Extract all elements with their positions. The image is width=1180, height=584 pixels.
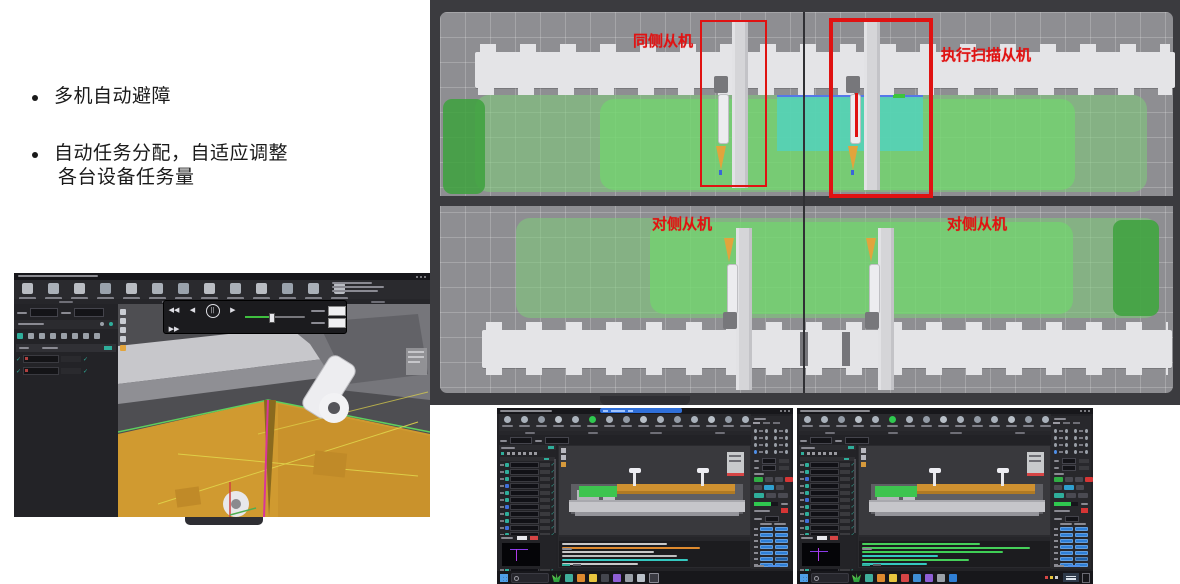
panel-menu-icon[interactable] — [100, 322, 104, 326]
radio-button[interactable] — [774, 450, 777, 454]
radio-row[interactable] — [1051, 434, 1091, 441]
player-button[interactable]: ▶ — [230, 306, 235, 314]
task-list-row[interactable] — [16, 354, 114, 364]
value-cell[interactable] — [775, 533, 788, 537]
radio-row[interactable] — [751, 448, 791, 455]
machine-side-viewport[interactable] — [858, 445, 1051, 536]
station-select[interactable] — [510, 437, 532, 444]
taskbar-search[interactable] — [811, 573, 849, 583]
radio-button[interactable] — [754, 450, 757, 454]
blue-button[interactable] — [1064, 485, 1074, 490]
task-type-select[interactable] — [74, 308, 104, 317]
radio-row[interactable] — [751, 434, 791, 441]
radio-button[interactable] — [754, 436, 757, 440]
start-button[interactable] — [800, 574, 808, 582]
toolbar-icon[interactable] — [652, 414, 669, 427]
station-select-row — [17, 308, 104, 317]
row-index — [800, 527, 804, 529]
apply-button[interactable] — [779, 459, 789, 463]
row-index — [800, 520, 804, 522]
toolbar-icon-label — [740, 425, 751, 427]
floating-blue-player[interactable] — [600, 408, 682, 413]
toolbar-icon[interactable] — [118, 280, 144, 299]
robot-effector-cone — [724, 238, 734, 262]
toolbar-icon[interactable] — [14, 280, 40, 299]
toolbar-icon[interactable] — [720, 414, 737, 427]
value-cell[interactable] — [1075, 533, 1088, 537]
radio-button[interactable] — [1074, 429, 1077, 433]
panel-footer-links[interactable] — [1054, 565, 1080, 567]
table-row[interactable] — [500, 518, 555, 524]
player-button[interactable]: ◀◀ — [169, 306, 180, 314]
value-cell[interactable] — [760, 545, 773, 549]
taskbar-app-icon[interactable] — [865, 574, 873, 582]
log-lines — [559, 543, 750, 565]
gray-button[interactable] — [1066, 493, 1076, 498]
toolbar-icon[interactable] — [867, 414, 884, 427]
tool-icon[interactable] — [83, 333, 89, 339]
blue-button[interactable] — [764, 485, 774, 490]
taskbar-app-icon[interactable] — [577, 574, 585, 582]
station-select[interactable] — [810, 437, 832, 444]
gray-button[interactable] — [765, 477, 773, 482]
tool-icon[interactable] — [39, 333, 45, 339]
windows-taskbar[interactable] — [797, 571, 1093, 584]
jog-input-row — [754, 458, 789, 464]
row-status-chip — [505, 526, 509, 530]
value-row-label — [754, 534, 758, 536]
camera-thumbnail[interactable] — [802, 543, 840, 566]
player-button[interactable]: ▶▶ — [169, 325, 180, 333]
row-status-chip — [505, 519, 509, 523]
table-row[interactable] — [800, 483, 855, 489]
presentation-slide: 多机自动避障 自动任务分配，自适应调整 各台设备任务量 — [0, 0, 1180, 584]
table-row[interactable] — [800, 469, 855, 475]
value-cell[interactable] — [1075, 557, 1088, 561]
log-tabs[interactable] — [862, 564, 881, 566]
value-cell[interactable] — [760, 539, 773, 543]
taskbar-app-icon[interactable] — [565, 574, 573, 582]
window-controls[interactable] — [416, 276, 426, 278]
radio-button[interactable] — [1074, 450, 1077, 454]
row-cell-name — [510, 511, 539, 517]
simulation-topview-screenshot: 同侧从机 执行扫描从机 对侧从机 对侧从机 — [430, 0, 1180, 405]
scrollbar[interactable] — [554, 459, 556, 533]
teal-button[interactable] — [754, 493, 764, 498]
start-button[interactable] — [754, 477, 763, 482]
table-row[interactable] — [500, 483, 555, 489]
table-row[interactable] — [800, 525, 855, 531]
mode-select[interactable] — [545, 437, 569, 444]
toolbar-icon[interactable] — [850, 414, 867, 427]
table-row[interactable] — [500, 525, 555, 531]
robot-arm — [629, 468, 641, 473]
value-cell[interactable] — [1075, 539, 1088, 543]
control-app-window-left — [497, 408, 793, 584]
toolbar-icon[interactable] — [833, 414, 850, 427]
teal-button[interactable] — [1054, 493, 1064, 498]
toolbar-icon-glyph — [957, 416, 964, 423]
floating-info-box — [406, 348, 427, 375]
gray-button[interactable] — [1076, 485, 1084, 490]
radio-button[interactable] — [774, 436, 777, 440]
log-line — [862, 551, 1003, 553]
jog-input[interactable] — [1062, 465, 1076, 471]
station-select[interactable] — [30, 308, 58, 317]
control-side-panel — [1051, 416, 1091, 569]
row-status-chip — [805, 491, 809, 495]
taskbar-app-icon[interactable] — [901, 574, 909, 582]
toolbar-icon-label — [938, 425, 949, 427]
task-list-row[interactable] — [16, 366, 114, 376]
table-row[interactable] — [500, 511, 555, 517]
toolbar-icon[interactable] — [222, 280, 248, 299]
tool-icon[interactable] — [120, 327, 126, 333]
machine-side-viewport[interactable] — [558, 445, 751, 536]
taskbar-app-icon[interactable] — [589, 574, 597, 582]
radio-button[interactable] — [1085, 436, 1088, 440]
tool-icon[interactable] — [28, 333, 34, 339]
gray-button[interactable] — [1065, 477, 1073, 482]
row-cell-value — [540, 463, 550, 467]
toolbar-icon[interactable] — [1037, 414, 1051, 427]
toolbar-icon-glyph — [126, 283, 137, 294]
row-cell-value — [840, 491, 850, 495]
jog-input[interactable] — [762, 465, 776, 471]
toolbar-icon[interactable] — [499, 414, 516, 427]
radio-button[interactable] — [1054, 450, 1057, 454]
toolbar-icon[interactable] — [1020, 414, 1037, 427]
toolbar-icon[interactable] — [196, 280, 222, 299]
table-row[interactable] — [500, 490, 555, 496]
tool-icon[interactable] — [120, 345, 126, 351]
radio-row[interactable] — [1051, 448, 1091, 455]
radio-button[interactable] — [754, 429, 757, 433]
radio-button[interactable] — [765, 436, 768, 440]
toolbar-icon[interactable] — [550, 414, 567, 427]
radio-label — [759, 451, 763, 453]
radio-button[interactable] — [1074, 436, 1077, 440]
toolbar-icon-label — [536, 425, 547, 427]
radio-button[interactable] — [1054, 429, 1057, 433]
value-cell[interactable] — [1060, 545, 1073, 549]
gray-button[interactable] — [1075, 477, 1083, 482]
toolbar-icon[interactable] — [669, 414, 686, 427]
value-cell[interactable] — [760, 527, 773, 531]
toolbar-icon[interactable] — [601, 414, 618, 427]
value-cell[interactable] — [1075, 545, 1088, 549]
toolbar-icon[interactable] — [935, 414, 952, 427]
taskbar-app-icon[interactable] — [949, 574, 957, 582]
tool-icon[interactable] — [120, 309, 126, 315]
taskbar-app-icon[interactable] — [601, 574, 609, 582]
toolbar-icon[interactable] — [969, 414, 986, 427]
toolbar-icon[interactable] — [799, 414, 816, 427]
player-button[interactable]: ◀ — [190, 306, 195, 314]
playback-speed-input[interactable] — [328, 318, 346, 328]
radio-button[interactable] — [785, 443, 788, 447]
toolbar-icon-glyph — [804, 416, 811, 423]
row-cell-name — [510, 476, 539, 482]
radio-button[interactable] — [1065, 429, 1068, 433]
toolbar-icon[interactable] — [918, 414, 935, 427]
toolbar-icon[interactable] — [635, 414, 652, 427]
active-app-icon[interactable] — [649, 573, 659, 583]
toolbar-icon[interactable] — [248, 280, 274, 299]
list-column-header — [500, 457, 555, 461]
taskbar-app-icon[interactable] — [937, 574, 945, 582]
toolbar-icon[interactable] — [703, 414, 720, 427]
taskbar-search[interactable] — [511, 573, 549, 583]
offset-field-row — [1054, 516, 1079, 522]
toolbar-icon[interactable] — [66, 280, 92, 299]
radio-button[interactable] — [1074, 443, 1077, 447]
taskbar-app-icon[interactable] — [925, 574, 933, 582]
toolbar-icon-label — [519, 425, 530, 427]
log-tabs[interactable] — [562, 564, 581, 566]
table-row[interactable] — [800, 518, 855, 524]
gray-button[interactable] — [766, 493, 776, 498]
table-row[interactable] — [500, 476, 555, 482]
row-cell-name — [810, 497, 839, 503]
row-status-chip — [505, 470, 509, 474]
value-cell[interactable] — [760, 557, 773, 561]
offset-input[interactable] — [1065, 516, 1079, 522]
toolbar-icon-glyph — [74, 283, 85, 294]
taskbar-app-icon[interactable] — [889, 574, 897, 582]
panel-tabs[interactable] — [1053, 422, 1080, 424]
gray-button[interactable] — [1054, 485, 1062, 490]
radio-row[interactable] — [1051, 427, 1091, 434]
log-panel[interactable] — [858, 536, 1051, 568]
taskbar-app-icon[interactable] — [613, 574, 621, 582]
value-cell[interactable] — [775, 545, 788, 549]
tool-icon[interactable] — [50, 333, 56, 339]
alarm-chip — [530, 536, 538, 540]
toolbar-icon[interactable] — [686, 414, 703, 427]
value-cell[interactable] — [1060, 557, 1073, 561]
stop-button[interactable] — [785, 477, 793, 482]
toolbar-icon[interactable] — [816, 414, 833, 427]
panel-tabs[interactable] — [753, 422, 780, 424]
value-cell[interactable] — [775, 539, 788, 543]
tray-clock[interactable] — [1063, 573, 1079, 582]
toolbar-icon-label — [689, 425, 700, 427]
radio-row[interactable] — [751, 441, 791, 448]
value-cell[interactable] — [760, 551, 773, 555]
toolbar-icon-glyph — [204, 283, 215, 294]
window-controls[interactable] — [1080, 410, 1090, 412]
table-row[interactable] — [800, 476, 855, 482]
taskbar-app-icon[interactable] — [877, 574, 885, 582]
row-index — [800, 478, 804, 480]
log-panel[interactable] — [558, 536, 751, 568]
taskbar-app-icon[interactable] — [637, 574, 645, 582]
toolbar-icon[interactable] — [1003, 414, 1020, 427]
table-row[interactable] — [800, 511, 855, 517]
gray-button[interactable] — [754, 485, 762, 490]
radio-button[interactable] — [1085, 429, 1088, 433]
table-row[interactable] — [500, 462, 555, 468]
value-cell[interactable] — [1075, 527, 1088, 531]
scrollbar[interactable] — [854, 459, 856, 533]
toolbar-icon-glyph — [821, 416, 828, 423]
value-row — [1054, 538, 1088, 543]
toolbar-icon-glyph — [308, 283, 319, 294]
toolbar-icon[interactable] — [737, 414, 751, 427]
preview-field[interactable] — [817, 536, 827, 540]
task-list-panel — [14, 304, 118, 517]
start-button[interactable] — [500, 574, 508, 582]
header-filter-chip[interactable] — [104, 346, 112, 350]
panel-chip[interactable] — [848, 446, 854, 449]
toolbar-icon[interactable] — [533, 414, 550, 427]
value-cell[interactable] — [775, 551, 788, 555]
toolbar-icon-glyph — [923, 416, 930, 423]
toolbar-icon-label — [802, 425, 813, 427]
stop-button[interactable] — [1085, 477, 1093, 482]
preview-field[interactable] — [517, 536, 527, 540]
panel-settings-icon[interactable] — [109, 322, 113, 326]
radio-button[interactable] — [1085, 450, 1088, 454]
panel-footer-links[interactable] — [754, 565, 780, 567]
row-check-icon — [16, 368, 21, 375]
taskbar-app-icon[interactable] — [913, 574, 921, 582]
radio-row[interactable] — [751, 427, 791, 434]
radio-row[interactable] — [1051, 441, 1091, 448]
radio-label — [759, 430, 763, 432]
toolbar-icon[interactable] — [92, 280, 118, 299]
list-column-header — [800, 457, 855, 461]
camera-thumbnail[interactable] — [502, 543, 540, 566]
value-row — [754, 538, 788, 543]
value-cell[interactable] — [1075, 551, 1088, 555]
apply-button[interactable] — [1079, 459, 1089, 463]
toolbar-icon[interactable] — [567, 414, 584, 427]
gray-button[interactable] — [1078, 493, 1088, 498]
apply-button[interactable] — [1079, 466, 1089, 470]
radio-button[interactable] — [754, 443, 757, 447]
tool-icon[interactable] — [120, 336, 126, 342]
value-cell[interactable] — [1060, 527, 1073, 531]
jog-input[interactable] — [1062, 458, 1076, 464]
radio-button[interactable] — [1065, 436, 1068, 440]
action-buttons-row — [1054, 477, 1093, 482]
value-cell[interactable] — [760, 533, 773, 537]
window-controls[interactable] — [780, 410, 790, 412]
toolbar-icon[interactable] — [901, 414, 918, 427]
show-desktop-button[interactable] — [1082, 573, 1090, 583]
tool-icon[interactable] — [61, 333, 67, 339]
bullet-marker — [32, 95, 38, 101]
sim-speed-input[interactable] — [328, 306, 346, 316]
tool-icon[interactable] — [120, 318, 126, 324]
toolbar-icon[interactable] — [952, 414, 969, 427]
mode-select[interactable] — [845, 437, 869, 444]
radio-button[interactable] — [774, 429, 777, 433]
toolbar-icon[interactable] — [274, 280, 300, 299]
offset-input[interactable] — [765, 516, 779, 522]
base-rail — [569, 500, 745, 512]
gray-button[interactable] — [776, 485, 784, 490]
value-cell[interactable] — [1060, 539, 1073, 543]
toolbar-icon[interactable] — [170, 280, 196, 299]
value-cell[interactable] — [1060, 533, 1073, 537]
toolbar-icon[interactable] — [618, 414, 635, 427]
panel-chip[interactable] — [548, 446, 554, 449]
table-row[interactable] — [800, 504, 855, 510]
radio-button[interactable] — [765, 450, 768, 454]
toolbar-icon[interactable] — [884, 414, 901, 427]
alarm-indicator — [1081, 508, 1088, 513]
radio-button[interactable] — [765, 429, 768, 433]
table-row[interactable] — [500, 469, 555, 475]
taskbar-app-icon[interactable] — [625, 574, 633, 582]
radio-button[interactable] — [785, 450, 788, 454]
radio-button[interactable] — [1065, 443, 1068, 447]
timeline-slider[interactable] — [245, 316, 305, 318]
table-row[interactable] — [800, 462, 855, 468]
player-button[interactable]: || — [206, 304, 220, 318]
viewer-3d-viewport[interactable] — [118, 304, 430, 517]
row-cell-name — [810, 476, 839, 482]
value-cell[interactable] — [1060, 551, 1073, 555]
value-cell[interactable] — [775, 527, 788, 531]
start-button[interactable] — [1054, 477, 1063, 482]
value-cell[interactable] — [775, 557, 788, 561]
radio-button[interactable] — [1065, 450, 1068, 454]
viewer-option-checkboxes[interactable] — [332, 282, 392, 297]
gray-button[interactable] — [775, 477, 783, 482]
tool-icon[interactable] — [94, 333, 100, 339]
job-list-panel — [499, 445, 556, 533]
system-tray-icons[interactable] — [1045, 576, 1058, 579]
row-index — [500, 485, 504, 487]
apply-button[interactable] — [779, 466, 789, 470]
viewer-titlebar[interactable] — [14, 273, 430, 280]
tool-icon[interactable] — [72, 333, 78, 339]
toolbar-icon[interactable] — [300, 280, 326, 299]
toolbar-icon[interactable] — [986, 414, 1003, 427]
toolbar-icon-glyph — [152, 283, 163, 294]
row-index — [800, 513, 804, 515]
radio-button[interactable] — [774, 443, 777, 447]
radio-button[interactable] — [765, 443, 768, 447]
toolbar-icon[interactable] — [40, 280, 66, 299]
radio-button[interactable] — [1054, 443, 1057, 447]
table-row[interactable] — [800, 490, 855, 496]
row-status-chip — [805, 512, 809, 516]
radio-button[interactable] — [1085, 443, 1088, 447]
toolbar-icon-glyph — [640, 416, 647, 423]
task-color-chip — [25, 357, 28, 360]
toolbar-icon-glyph — [230, 283, 241, 294]
gray-button[interactable] — [778, 493, 788, 498]
radio-button[interactable] — [1054, 436, 1057, 440]
toolbar-icon[interactable] — [516, 414, 533, 427]
table-row[interactable] — [500, 497, 555, 503]
toolbar-icon[interactable] — [144, 280, 170, 299]
table-row[interactable] — [800, 497, 855, 503]
radio-button[interactable] — [785, 436, 788, 440]
jog-input[interactable] — [762, 458, 776, 464]
table-row[interactable] — [500, 504, 555, 510]
toolbar-icon[interactable] — [584, 414, 601, 427]
windows-taskbar[interactable] — [497, 571, 793, 584]
radio-button[interactable] — [785, 429, 788, 433]
tool-icon[interactable] — [17, 333, 23, 339]
row-cell-value — [540, 526, 550, 530]
